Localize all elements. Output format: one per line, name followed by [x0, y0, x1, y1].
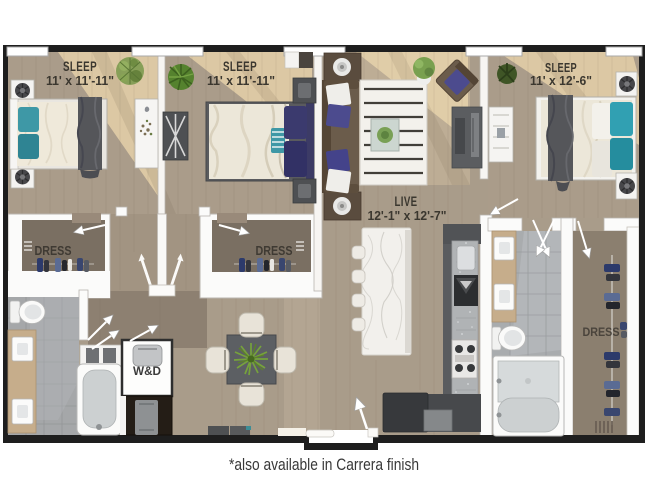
- svg-text:12'-1" x 12'-7": 12'-1" x 12'-7": [368, 208, 447, 223]
- svg-text:SLEEP: SLEEP: [223, 59, 257, 74]
- svg-text:W&D: W&D: [133, 366, 161, 378]
- svg-text:DRESS: DRESS: [583, 325, 620, 339]
- svg-text:LIVE: LIVE: [395, 194, 418, 209]
- svg-text:11' x 11'-11": 11' x 11'-11": [46, 73, 114, 88]
- svg-text:SLEEP: SLEEP: [63, 59, 97, 74]
- svg-text:11' x 12'-6": 11' x 12'-6": [530, 74, 592, 88]
- svg-text:*also available in Carrera fin: *also available in Carrera finish: [229, 455, 419, 474]
- svg-text:DRESS: DRESS: [256, 244, 293, 258]
- svg-text:SLEEP: SLEEP: [545, 60, 577, 75]
- svg-text:DRESS: DRESS: [35, 244, 72, 258]
- svg-text:11' x 11'-11": 11' x 11'-11": [207, 73, 275, 88]
